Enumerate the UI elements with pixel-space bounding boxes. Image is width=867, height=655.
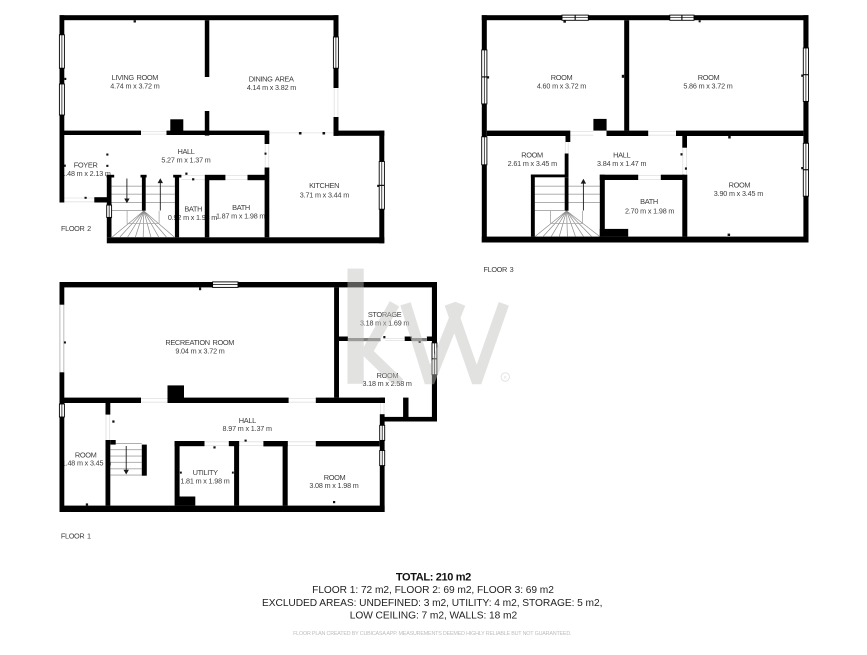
svg-text:1.87 m x 1.98 m: 1.87 m x 1.98 m: [216, 211, 265, 220]
svg-text:5.27 m x 1.37 m: 5.27 m x 1.37 m: [161, 156, 210, 165]
svg-text:ROOM: ROOM: [698, 73, 720, 82]
svg-text:9.04 m x 3.72 m: 9.04 m x 3.72 m: [175, 347, 224, 356]
svg-text:3.08 m x 1.98 m: 3.08 m x 1.98 m: [309, 481, 358, 490]
svg-text:1.81 m x 1.98 m: 1.81 m x 1.98 m: [180, 477, 229, 486]
svg-text:8.97 m x 1.37 m: 8.97 m x 1.37 m: [223, 424, 272, 433]
svg-text:KITCHEN: KITCHEN: [309, 181, 339, 190]
svg-text:4.60 m x 3.72 m: 4.60 m x 3.72 m: [537, 82, 586, 91]
svg-text:FLOOR PLAN CREATED BY CUBICASA: FLOOR PLAN CREATED BY CUBICASA APP. MEAS…: [293, 631, 571, 637]
svg-text:FLOOR 3: FLOOR 3: [484, 265, 514, 274]
svg-text:4.14 m x 3.82 m: 4.14 m x 3.82 m: [247, 83, 296, 92]
svg-text:LOW CEILING: 7 m2, WALLS: 18 m: LOW CEILING: 7 m2, WALLS: 18 m2: [350, 611, 518, 622]
svg-text:3.71 m x 3.44 m: 3.71 m x 3.44 m: [300, 190, 349, 199]
svg-text:4.74 m x 3.72 m: 4.74 m x 3.72 m: [110, 82, 159, 91]
svg-text:BATH: BATH: [640, 197, 658, 206]
svg-text:ROOM: ROOM: [551, 73, 573, 82]
svg-text:3.90 m x 3.45 m: 3.90 m x 3.45 m: [714, 189, 763, 198]
svg-text:2.61 m x 3.45 m: 2.61 m x 3.45 m: [508, 159, 557, 168]
svg-text:1.48 m x 3.45 m: 1.48 m x 3.45 m: [62, 458, 111, 467]
svg-text:3.18 m x 2.58 m: 3.18 m x 2.58 m: [362, 379, 411, 388]
svg-text:1.48 m x 2.13 m: 1.48 m x 2.13 m: [61, 169, 110, 178]
svg-text:2.70 m x 1.98 m: 2.70 m x 1.98 m: [625, 206, 674, 215]
svg-text:3.84 m x 1.47 m: 3.84 m x 1.47 m: [597, 159, 646, 168]
svg-text:FLOOR 1: 72 m2, FLOOR 2: 69 m2: FLOOR 1: 72 m2, FLOOR 2: 69 m2, FLOOR 3:…: [312, 585, 554, 596]
svg-text:EXCLUDED AREAS: UNDEFINED: 3 m: EXCLUDED AREAS: UNDEFINED: 3 m2, UTILITY…: [262, 598, 602, 609]
svg-text:FLOOR 1: FLOOR 1: [61, 532, 91, 541]
svg-text:5.86 m x 3.72 m: 5.86 m x 3.72 m: [683, 82, 732, 91]
svg-text:FLOOR 2: FLOOR 2: [61, 224, 91, 233]
svg-text:TOTAL: 210 m2: TOTAL: 210 m2: [396, 571, 471, 583]
